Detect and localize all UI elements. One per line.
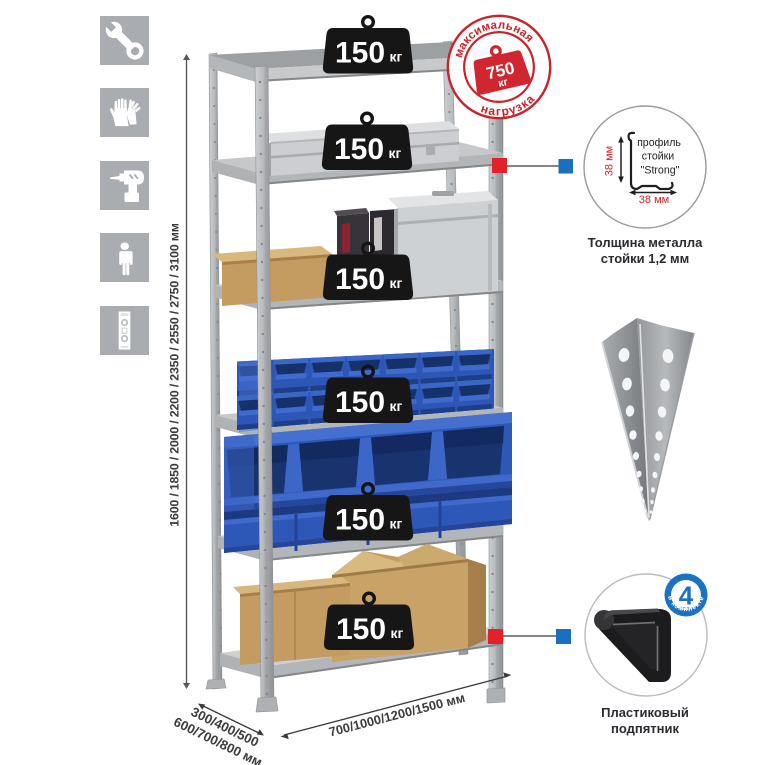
svg-text:38 мм: 38 мм	[604, 146, 616, 176]
svg-text:профиль: профиль	[637, 137, 681, 149]
svg-text:150: 150	[336, 613, 386, 646]
svg-text:700/1000/1200/1500 мм: 700/1000/1200/1500 мм	[327, 690, 466, 740]
svg-text:кг: кг	[390, 49, 403, 65]
svg-text:150: 150	[335, 504, 385, 537]
svg-text:150: 150	[335, 386, 385, 419]
svg-text:стойки: стойки	[642, 151, 674, 163]
svg-text:кг: кг	[390, 398, 403, 414]
svg-text:кг: кг	[391, 625, 404, 641]
svg-text:"Strong": "Strong"	[641, 165, 680, 177]
svg-text:Пластиковый: Пластиковый	[601, 705, 689, 720]
svg-text:кг: кг	[389, 145, 402, 161]
svg-text:подпятник: подпятник	[611, 721, 680, 736]
svg-text:150: 150	[334, 133, 384, 166]
svg-text:кг: кг	[390, 516, 403, 532]
svg-text:кг: кг	[390, 275, 403, 291]
svg-text:стойки 1,2 мм: стойки 1,2 мм	[601, 251, 689, 266]
svg-text:1600 / 1850 / 2000 / 2200 / 23: 1600 / 1850 / 2000 / 2200 / 2350 / 2550 …	[168, 223, 182, 526]
svg-text:150: 150	[335, 37, 385, 70]
svg-text:38 мм: 38 мм	[639, 194, 669, 206]
svg-text:Толщина металла: Толщина металла	[588, 235, 703, 250]
svg-text:150: 150	[335, 263, 385, 296]
